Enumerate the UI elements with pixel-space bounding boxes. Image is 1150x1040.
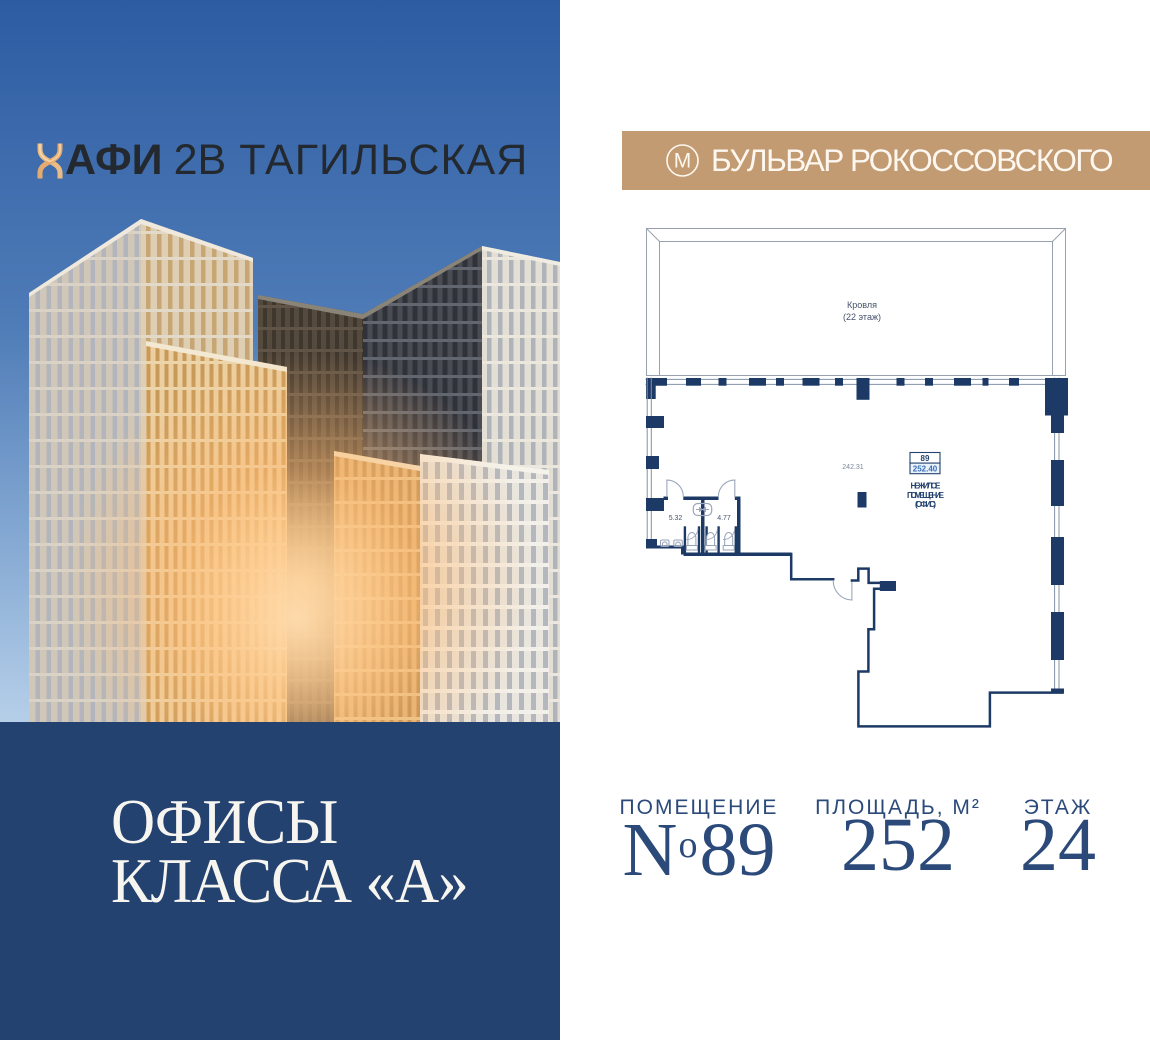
svg-text:ПОМЕЩЕНИЕ: ПОМЕЩЕНИЕ [907, 491, 945, 500]
svg-text:НЕЖИЛОЕ: НЕЖИЛОЕ [911, 481, 942, 490]
svg-text:Кровля: Кровля [847, 300, 877, 310]
svg-text:242.31: 242.31 [842, 464, 864, 471]
svg-text:252.40: 252.40 [913, 465, 938, 474]
svg-text:(22 этаж): (22 этаж) [843, 312, 881, 322]
svg-text:89: 89 [921, 454, 930, 463]
svg-text:4.77: 4.77 [717, 515, 731, 522]
svg-text:5.32: 5.32 [669, 515, 683, 522]
svg-text:(ОФИС): (ОФИС) [915, 500, 936, 509]
